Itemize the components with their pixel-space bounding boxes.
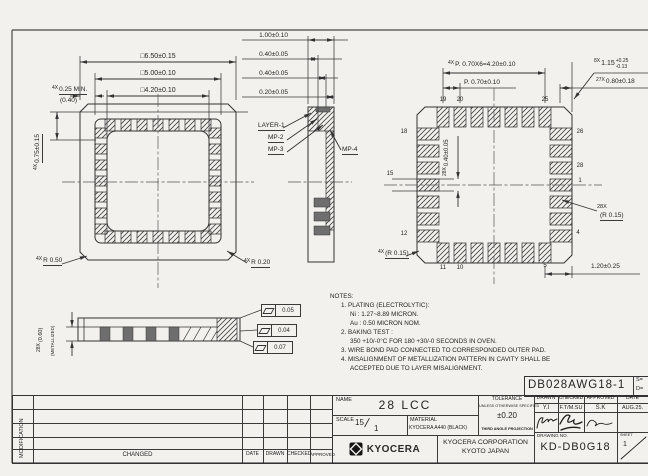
checked-value: F.T/M.SU bbox=[558, 405, 584, 411]
tolerance-label: TOLERANCE bbox=[480, 397, 534, 403]
qty-prefix: 4X bbox=[33, 164, 39, 170]
scale-label: SCALE bbox=[336, 417, 354, 423]
plan-corner-ref-label: (0.40) bbox=[60, 97, 77, 104]
note-line: Au : 0.50 MICRON NOM. bbox=[350, 320, 421, 327]
note-line: 1. PLATING (ELECTROLYTIC): bbox=[341, 302, 429, 309]
qty-prefix: 28X bbox=[36, 343, 42, 352]
flatness-icon bbox=[258, 325, 272, 336]
material-value: KYOCERA A440 (BLACK) bbox=[409, 426, 477, 432]
s-equals: S= bbox=[636, 377, 643, 383]
drawing-no-label: DRAWING NO. bbox=[537, 433, 568, 438]
r15-value: (R 0.15) bbox=[385, 250, 408, 259]
d-equals: D= bbox=[636, 386, 643, 392]
drawing-no-value: KD-DB0G18 bbox=[534, 441, 617, 454]
qty-prefix: 4X bbox=[378, 249, 384, 255]
material-label: MATERIAL bbox=[410, 417, 437, 423]
date-header: DATE bbox=[617, 396, 648, 402]
note-line: 3. WIRE BOND PAD CONNECTED TO CORRESPOND… bbox=[341, 347, 546, 354]
bottom-pad27-label: 27X0.80±0.18 bbox=[596, 78, 635, 86]
flatness-callout-3: 0.07 bbox=[253, 341, 293, 354]
bottom-r15-4-label: 4X(R 0.15) bbox=[378, 250, 409, 258]
pin-10: 10 bbox=[454, 265, 466, 272]
rev-approved-header: APPROVED bbox=[310, 452, 331, 457]
side-hatch-block bbox=[217, 318, 237, 341]
rev-drawn-header: DRAWN bbox=[263, 452, 287, 458]
tolerance-value: ±0.20 bbox=[480, 411, 534, 420]
radius-in-value: R 0.20 bbox=[251, 259, 270, 268]
flatness-value: 0.07 bbox=[268, 345, 292, 351]
qty-prefix: 27X bbox=[596, 77, 605, 83]
qty-prefix: 4X bbox=[52, 85, 58, 91]
plan-dim-mid: □5.00±0.10 bbox=[110, 70, 206, 78]
note-line: Ni : 1.27~8.89 MICRON. bbox=[350, 311, 418, 318]
pin-1: 1 bbox=[574, 178, 586, 185]
approved-header: APPROVED bbox=[584, 396, 617, 402]
section-dim-4: 0.20±0.05 bbox=[240, 89, 288, 96]
plan-dim-inner: □4.20±0.10 bbox=[110, 87, 206, 95]
section-layer1-label: LAYER-1 bbox=[258, 122, 285, 131]
drawing-sheet: □6.50±0.15 □5.00±0.10 □4.20±0.10 4X0.25 … bbox=[0, 0, 648, 476]
rev-date-header: DATE bbox=[242, 452, 263, 458]
pad-len-value: 1.15 bbox=[601, 60, 615, 68]
pin-5: 5 bbox=[539, 263, 551, 270]
pin-26: 26 bbox=[574, 129, 586, 136]
section-mp3-label: MP-3 bbox=[268, 146, 284, 155]
section-dim-1: 1.00±0.10 bbox=[240, 32, 288, 39]
flatness-icon bbox=[262, 305, 276, 316]
bottom-r15-28-label: (R 0.15) bbox=[600, 212, 623, 221]
modification-label: MODIFICATION bbox=[19, 418, 25, 458]
company-city: KYOTO JAPAN bbox=[437, 448, 534, 456]
kyocera-logo: KYOCERA bbox=[332, 435, 437, 463]
flatness-icon bbox=[254, 342, 268, 353]
pin-25: 25 bbox=[539, 97, 551, 104]
section-mp4-label: MP-4 bbox=[342, 146, 358, 155]
side-metallized-dim-label: 28X(0.60) bbox=[38, 328, 45, 352]
scale-denominator: 1 bbox=[374, 424, 378, 433]
note-line: ACCEPTED DUE TO LAYER MISALIGNMENT. bbox=[350, 365, 482, 372]
pin-28: 28 bbox=[574, 163, 586, 170]
part-number: DB028AWG18-1 bbox=[528, 379, 625, 392]
section-mp2-label: MP-2 bbox=[268, 134, 284, 143]
bottom-pad-len-label: 8X1.15+0.25-0.13 bbox=[594, 58, 628, 70]
flatness-value: 0.04 bbox=[272, 328, 296, 334]
flatness-callout-1: 0.05 bbox=[261, 304, 301, 317]
flatness-callout-2: 0.04 bbox=[257, 324, 297, 337]
section-dim-3: 0.40±0.05 bbox=[240, 70, 288, 77]
side-view bbox=[78, 318, 240, 341]
side-metallized-label: (METALLIZED) bbox=[50, 326, 55, 356]
drawn-header: DRAWN bbox=[534, 396, 558, 402]
checked-header: CHECKED bbox=[558, 396, 584, 402]
section-dim-2: 0.40±0.05 bbox=[240, 51, 288, 58]
pad27-value: 0.80±0.18 bbox=[606, 78, 635, 85]
pin-4: 4 bbox=[572, 230, 584, 237]
bottom-pad-width-label: 28X0.40±0.05 bbox=[444, 139, 451, 176]
changed-label: CHANGED bbox=[33, 452, 242, 459]
kyocera-wordmark: KYOCERA bbox=[367, 444, 421, 455]
pin-11: 11 bbox=[437, 265, 449, 272]
sheet-value: 1 bbox=[623, 441, 627, 449]
plan-radius-out-label: 4XR 0.50 bbox=[36, 257, 62, 265]
tolerance-sub-label: UNLESS OTHERWISE SPECIFIED bbox=[479, 404, 535, 408]
bottom-pitch-total-label: 4XP. 0.70X6=4.20±0.10 bbox=[448, 61, 516, 69]
plan-dim-outer: □6.50±0.15 bbox=[110, 53, 206, 61]
notes-title: NOTES: bbox=[330, 293, 353, 300]
qty-prefix: 4X bbox=[244, 258, 250, 264]
metallized-height-value: (0.60) bbox=[38, 328, 44, 342]
pin-19: 19 bbox=[437, 97, 449, 104]
rev-checked-header: CHECKED bbox=[287, 452, 310, 458]
plan-radius-in-label: 4XR 0.20 bbox=[244, 259, 270, 267]
note-line: 350 +10/-0°C FOR 180 +30/-0 SECONDS IN O… bbox=[350, 338, 497, 345]
projection-label: THIRD ANGLE PROJECTION bbox=[481, 427, 533, 431]
kyocera-logo-icon bbox=[349, 442, 363, 456]
pad-width-value: 0.40±0.05 bbox=[444, 139, 450, 166]
company-name: KYOCERA CORPORATION bbox=[437, 439, 534, 447]
bottom-corner-dim-label: 1.20±0.25 bbox=[591, 263, 620, 270]
radius-out-value: R 0.50 bbox=[43, 257, 62, 266]
qty-prefix: 8X bbox=[594, 59, 600, 65]
ledge-value: 0.75±0.15 bbox=[34, 134, 43, 163]
plan-ledge-label: 4X0.75±0.15 bbox=[34, 134, 42, 170]
corner-min-value: 0.25 MIN. bbox=[59, 86, 87, 95]
approved-value: S.K bbox=[584, 405, 617, 412]
note-line: 2. BAKING TEST : bbox=[341, 329, 393, 336]
scale-numerator: 15 bbox=[355, 418, 364, 427]
qty-prefix: 4X bbox=[448, 60, 454, 66]
flatness-value: 0.05 bbox=[276, 308, 300, 314]
sheet-label: SHEET bbox=[620, 433, 633, 437]
plan-corner-min-label: 4X0.25 MIN. bbox=[52, 86, 87, 94]
pad-len-minus: -0.13 bbox=[616, 64, 629, 70]
pin-18: 18 bbox=[398, 129, 410, 136]
qty-prefix: 28X bbox=[442, 167, 448, 176]
note-line: 4. MISALIGNMENT OF METALLIZATION PATTERN… bbox=[341, 356, 550, 363]
drawn-value: Y.I bbox=[534, 405, 558, 412]
pin-12: 12 bbox=[398, 231, 410, 238]
date-value: AUG.25. bbox=[617, 405, 648, 411]
part-name: 28 LCC bbox=[332, 399, 478, 413]
bottom-pitch-label: P. 0.70±0.10 bbox=[464, 79, 500, 86]
pitch-total-value: P. 0.70X6=4.20±0.10 bbox=[455, 61, 515, 68]
pin-20: 20 bbox=[454, 97, 466, 104]
bottom-r15-28-prefix: 28X bbox=[597, 204, 607, 210]
qty-prefix: 4X bbox=[36, 256, 42, 262]
pin-15: 15 bbox=[384, 171, 396, 178]
